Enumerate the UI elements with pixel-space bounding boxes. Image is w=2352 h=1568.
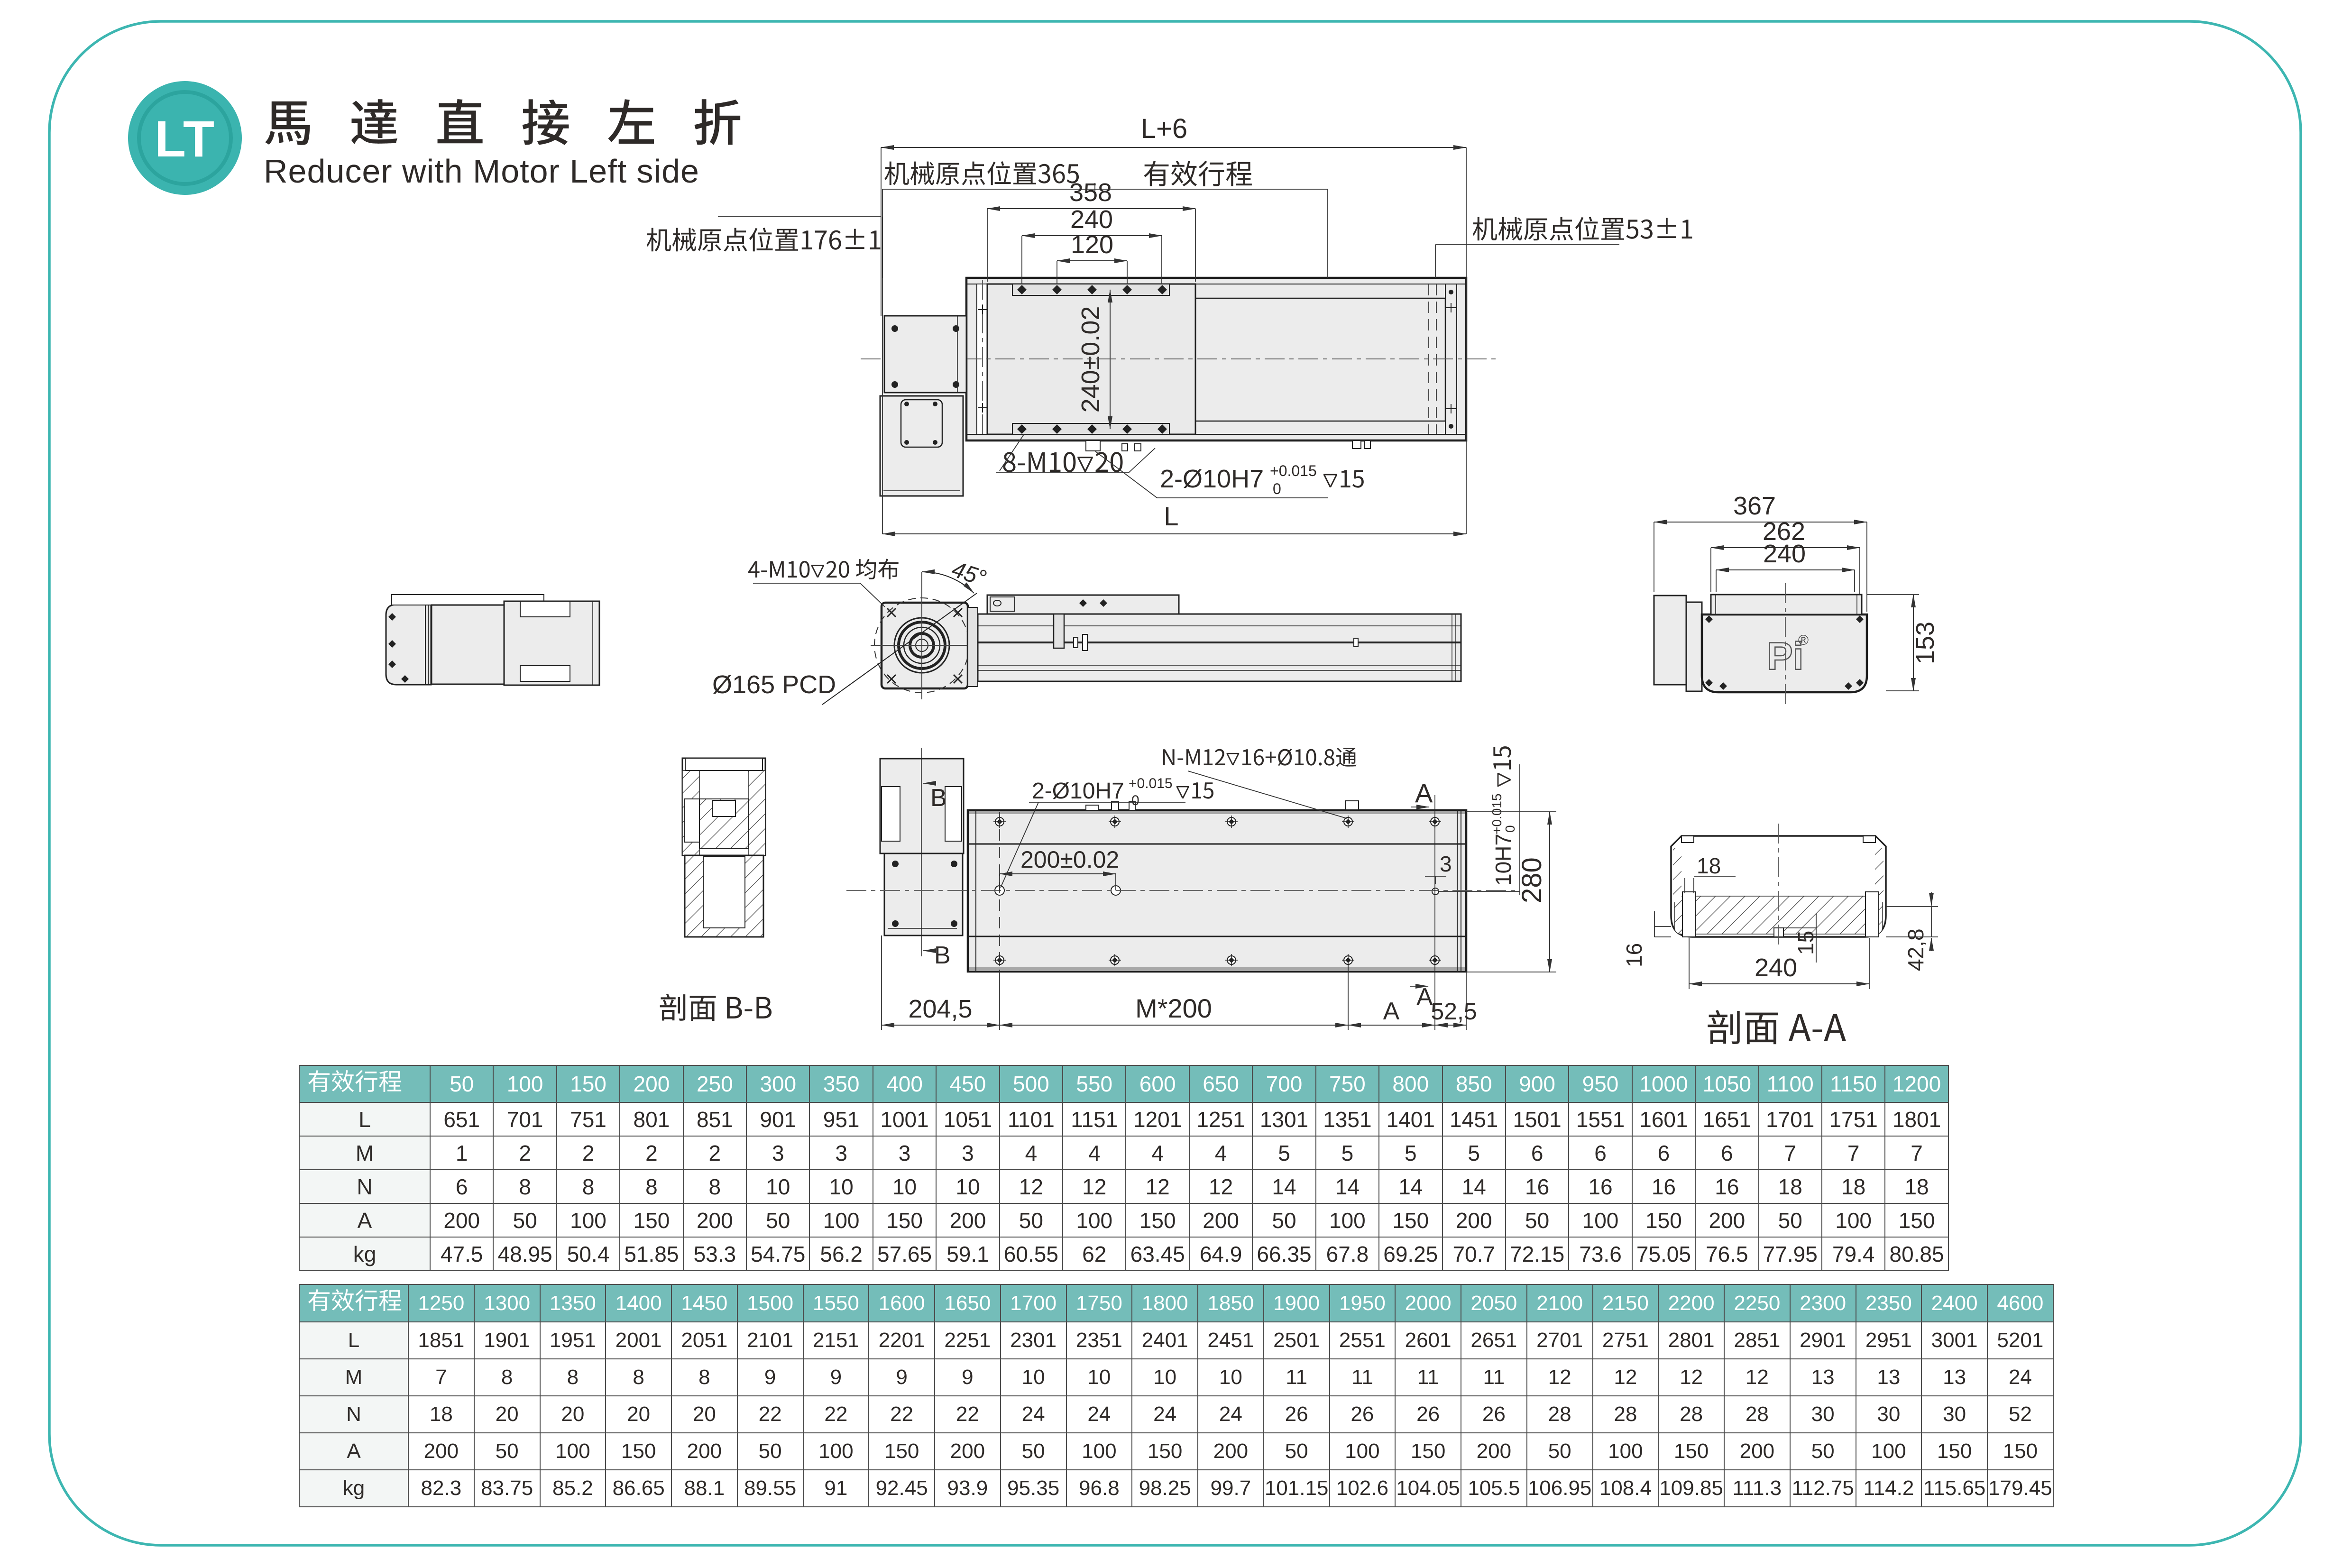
svg-text:15: 15 — [1793, 931, 1818, 955]
svg-text:153: 153 — [1911, 622, 1939, 664]
svg-text:367: 367 — [1733, 492, 1776, 520]
svg-text:+0.015: +0.015 — [1489, 794, 1504, 834]
svg-text:240: 240 — [1755, 954, 1797, 982]
svg-text:®: ® — [1798, 633, 1809, 648]
svg-text:B: B — [930, 784, 947, 812]
svg-text:240: 240 — [1070, 205, 1113, 234]
svg-text:Reducer with Motor Left side: Reducer with Motor Left side — [264, 153, 699, 190]
svg-text:204,5: 204,5 — [908, 995, 972, 1023]
svg-text:0: 0 — [1273, 480, 1281, 497]
svg-text:L+6: L+6 — [1141, 113, 1187, 144]
svg-text:358: 358 — [1069, 178, 1112, 207]
svg-text:52,5: 52,5 — [1431, 998, 1477, 1025]
svg-text:2-Ø10H7: 2-Ø10H7 — [1160, 465, 1264, 493]
svg-text:16: 16 — [1622, 943, 1646, 967]
svg-text:2-Ø10H7: 2-Ø10H7 — [1032, 779, 1124, 804]
svg-text:+0.015: +0.015 — [1270, 462, 1317, 479]
svg-text:10H7: 10H7 — [1491, 834, 1516, 886]
svg-text:0: 0 — [1131, 793, 1139, 808]
svg-text:A: A — [1415, 778, 1433, 808]
svg-text:M*200: M*200 — [1135, 993, 1212, 1023]
svg-text:280: 280 — [1516, 857, 1547, 903]
svg-text:L: L — [1164, 501, 1178, 531]
svg-text:Ø165 PCD: Ø165 PCD — [712, 670, 836, 699]
svg-text:42,8: 42,8 — [1903, 928, 1928, 971]
svg-text:240±0.02: 240±0.02 — [1076, 306, 1105, 413]
svg-text:0: 0 — [1503, 825, 1517, 833]
svg-text:120: 120 — [1071, 230, 1113, 259]
svg-text:240: 240 — [1763, 540, 1806, 568]
svg-text:+0.015: +0.015 — [1129, 776, 1173, 791]
svg-text:A: A — [1383, 998, 1400, 1025]
svg-text:45°: 45° — [949, 557, 989, 591]
svg-text:LT: LT — [155, 110, 215, 167]
svg-text:200±0.02: 200±0.02 — [1020, 846, 1119, 873]
svg-text:18: 18 — [1697, 853, 1721, 878]
svg-text:3: 3 — [1440, 852, 1452, 876]
svg-text:B: B — [934, 942, 951, 969]
